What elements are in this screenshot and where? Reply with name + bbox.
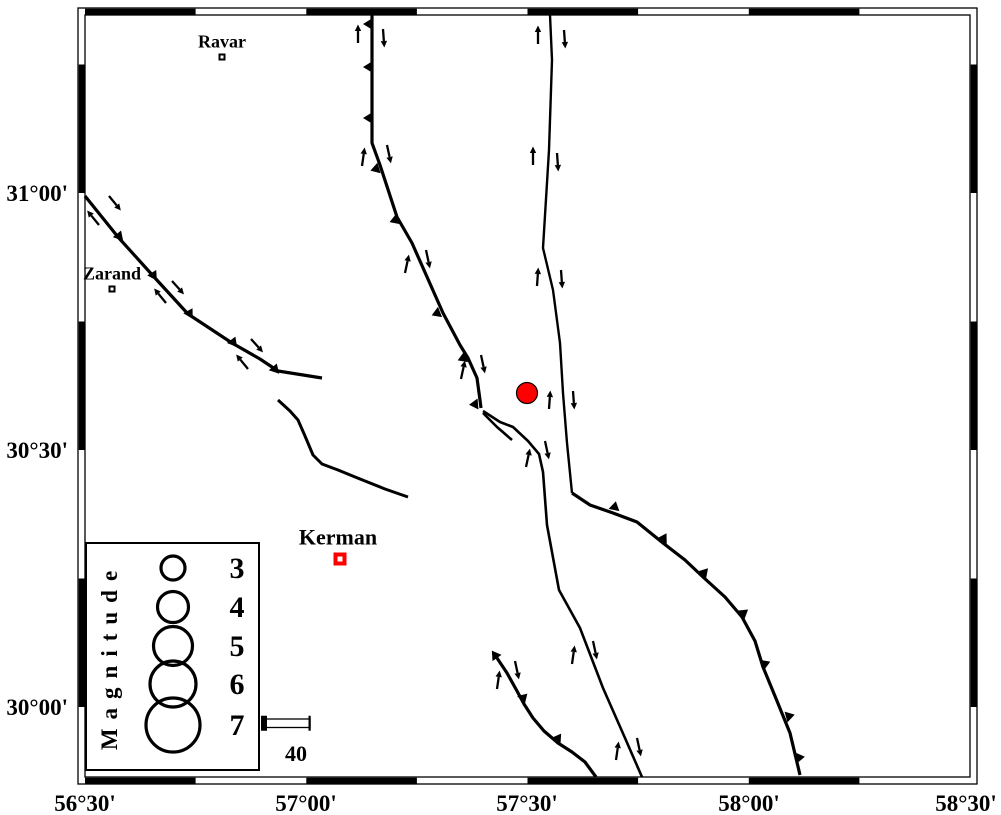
slip-arrow-shaft xyxy=(109,196,117,205)
legend-magnitude-label: 4 xyxy=(230,591,245,624)
slip-arrow-head xyxy=(562,42,568,49)
fault-tooth xyxy=(609,501,620,511)
frame-tick-segment-top xyxy=(749,9,860,15)
slip-arrow-head xyxy=(514,672,520,679)
fault-line-southwest-fault xyxy=(495,655,596,777)
city-marker-center-ravar xyxy=(221,56,224,59)
x-axis-tick-label: 58°00' xyxy=(718,791,780,815)
slip-arrow-shaft xyxy=(405,261,408,273)
fault-tooth xyxy=(227,337,237,347)
slip-arrow-head xyxy=(404,255,410,262)
slip-arrow-head xyxy=(555,165,561,172)
fault-tooth xyxy=(469,399,478,410)
slip-arrow-head xyxy=(615,742,621,749)
x-axis-tick-label: 56°30' xyxy=(54,791,116,815)
frame-tick-segment-bottom xyxy=(528,778,639,784)
frame-tick-segment-left xyxy=(79,65,85,194)
slip-arrow-head xyxy=(559,282,565,289)
slip-arrow-shaft xyxy=(549,397,550,409)
slip-arrow-shaft xyxy=(593,641,596,653)
y-axis-tick-label: 30°00' xyxy=(6,695,68,720)
fault-line-short-curved-fault xyxy=(278,400,408,497)
fault-line-kuh-banan-fault xyxy=(85,196,322,378)
slip-arrow-shaft xyxy=(515,661,518,673)
slip-arrow-shaft xyxy=(387,145,390,157)
slip-arrow-head xyxy=(535,26,541,33)
slip-arrow-shaft xyxy=(481,355,484,367)
slip-arrow-head xyxy=(544,452,550,459)
scalebar-bar xyxy=(262,719,310,728)
frame-tick-segment-bottom xyxy=(85,778,196,784)
slip-arrow-head xyxy=(355,25,361,32)
slip-arrow-head xyxy=(571,403,577,410)
frame-tick-segment-left xyxy=(79,579,85,708)
slip-arrow-shaft xyxy=(172,281,180,290)
scalebar-right-tick xyxy=(309,716,311,731)
frame-tick-segment-top xyxy=(528,9,639,15)
slip-arrow-head xyxy=(425,261,431,268)
x-axis-tick-label: 58°30' xyxy=(935,791,997,815)
city-marker-center-zarand xyxy=(111,288,114,291)
slip-arrow-shaft xyxy=(561,270,562,282)
slip-arrow-shaft xyxy=(537,274,538,286)
slip-arrow-head xyxy=(525,449,531,456)
city-label-kerman: Kerman xyxy=(299,525,377,550)
slip-arrow-shaft xyxy=(526,455,529,467)
scalebar-label: 40 xyxy=(285,741,307,766)
slip-arrow-head xyxy=(480,366,486,373)
fault-tooth xyxy=(363,113,372,124)
slip-arrow-shaft xyxy=(557,153,558,165)
fault-line-splay-segment xyxy=(483,413,512,440)
slip-arrow-shaft xyxy=(461,367,464,379)
frame-tick-segment-right xyxy=(971,65,977,194)
x-axis-tick-label: 57°30' xyxy=(496,791,558,815)
slip-arrow-shaft xyxy=(426,250,429,262)
frame-tick-segment-bottom xyxy=(749,778,860,784)
frame-tick-segment-right xyxy=(971,579,977,708)
slip-arrow-shaft xyxy=(545,441,548,453)
slip-arrow-shaft xyxy=(497,677,499,689)
fault-line-central-fault xyxy=(483,411,642,777)
slip-arrow-head xyxy=(592,652,598,659)
city-label-zarand: Zarand xyxy=(83,264,141,284)
slip-arrow-head xyxy=(535,268,541,275)
slip-arrow-head xyxy=(571,646,577,653)
legend-magnitude-label: 3 xyxy=(230,552,245,585)
legend-magnitude-label: 7 xyxy=(230,709,245,742)
slip-arrow-shaft xyxy=(362,154,364,166)
scalebar-left-cap xyxy=(261,716,267,731)
slip-arrow-head xyxy=(547,391,553,398)
seismotectonic-map: RavarZarandKermanMagnitude345674056°30'5… xyxy=(0,0,1001,815)
slip-arrow-shaft xyxy=(637,738,640,750)
map-canvas: RavarZarandKermanMagnitude345674056°30'5… xyxy=(0,0,1001,815)
legend-magnitude-label: 5 xyxy=(230,630,245,663)
slip-arrow-head xyxy=(361,148,367,155)
frame-tick-segment-top xyxy=(85,9,196,15)
frame-tick-segment-right xyxy=(971,322,977,451)
legend-title: Magnitude xyxy=(97,562,122,750)
fault-line-northeast-fault xyxy=(543,15,572,493)
frame-tick-segment-bottom xyxy=(306,778,417,784)
city-marker-center-kerman xyxy=(338,557,343,562)
slip-arrow-shaft xyxy=(240,360,248,369)
earthquake-epicenter xyxy=(517,383,538,404)
fault-line-eastern-arc-fault xyxy=(572,493,800,775)
y-axis-tick-label: 31°00' xyxy=(6,181,68,206)
slip-arrow-shaft xyxy=(616,748,618,760)
city-label-ravar: Ravar xyxy=(198,32,246,52)
slip-arrow-shaft xyxy=(572,652,574,664)
frame-tick-segment-top xyxy=(306,9,417,15)
slip-arrow-shaft xyxy=(573,391,574,403)
fault-tooth xyxy=(363,62,372,73)
slip-arrow-head xyxy=(386,156,392,163)
fault-line-west-central-fault xyxy=(372,15,481,408)
slip-arrow-head xyxy=(636,749,642,756)
slip-arrow-head xyxy=(530,147,536,154)
slip-arrow-shaft xyxy=(383,29,384,41)
slip-arrow-shaft xyxy=(251,339,259,348)
frame-tick-segment-left xyxy=(79,322,85,451)
x-axis-tick-label: 57°00' xyxy=(275,791,337,815)
slip-arrow-head xyxy=(496,671,502,678)
slip-arrow-head xyxy=(381,41,387,48)
y-axis-tick-label: 30°30' xyxy=(6,438,68,463)
slip-arrow-shaft xyxy=(158,294,166,303)
slip-arrow-shaft xyxy=(564,30,565,42)
fault-tooth xyxy=(795,753,805,764)
legend-magnitude-label: 6 xyxy=(230,668,245,701)
slip-arrow-shaft xyxy=(91,216,99,225)
fault-tooth xyxy=(363,19,372,30)
